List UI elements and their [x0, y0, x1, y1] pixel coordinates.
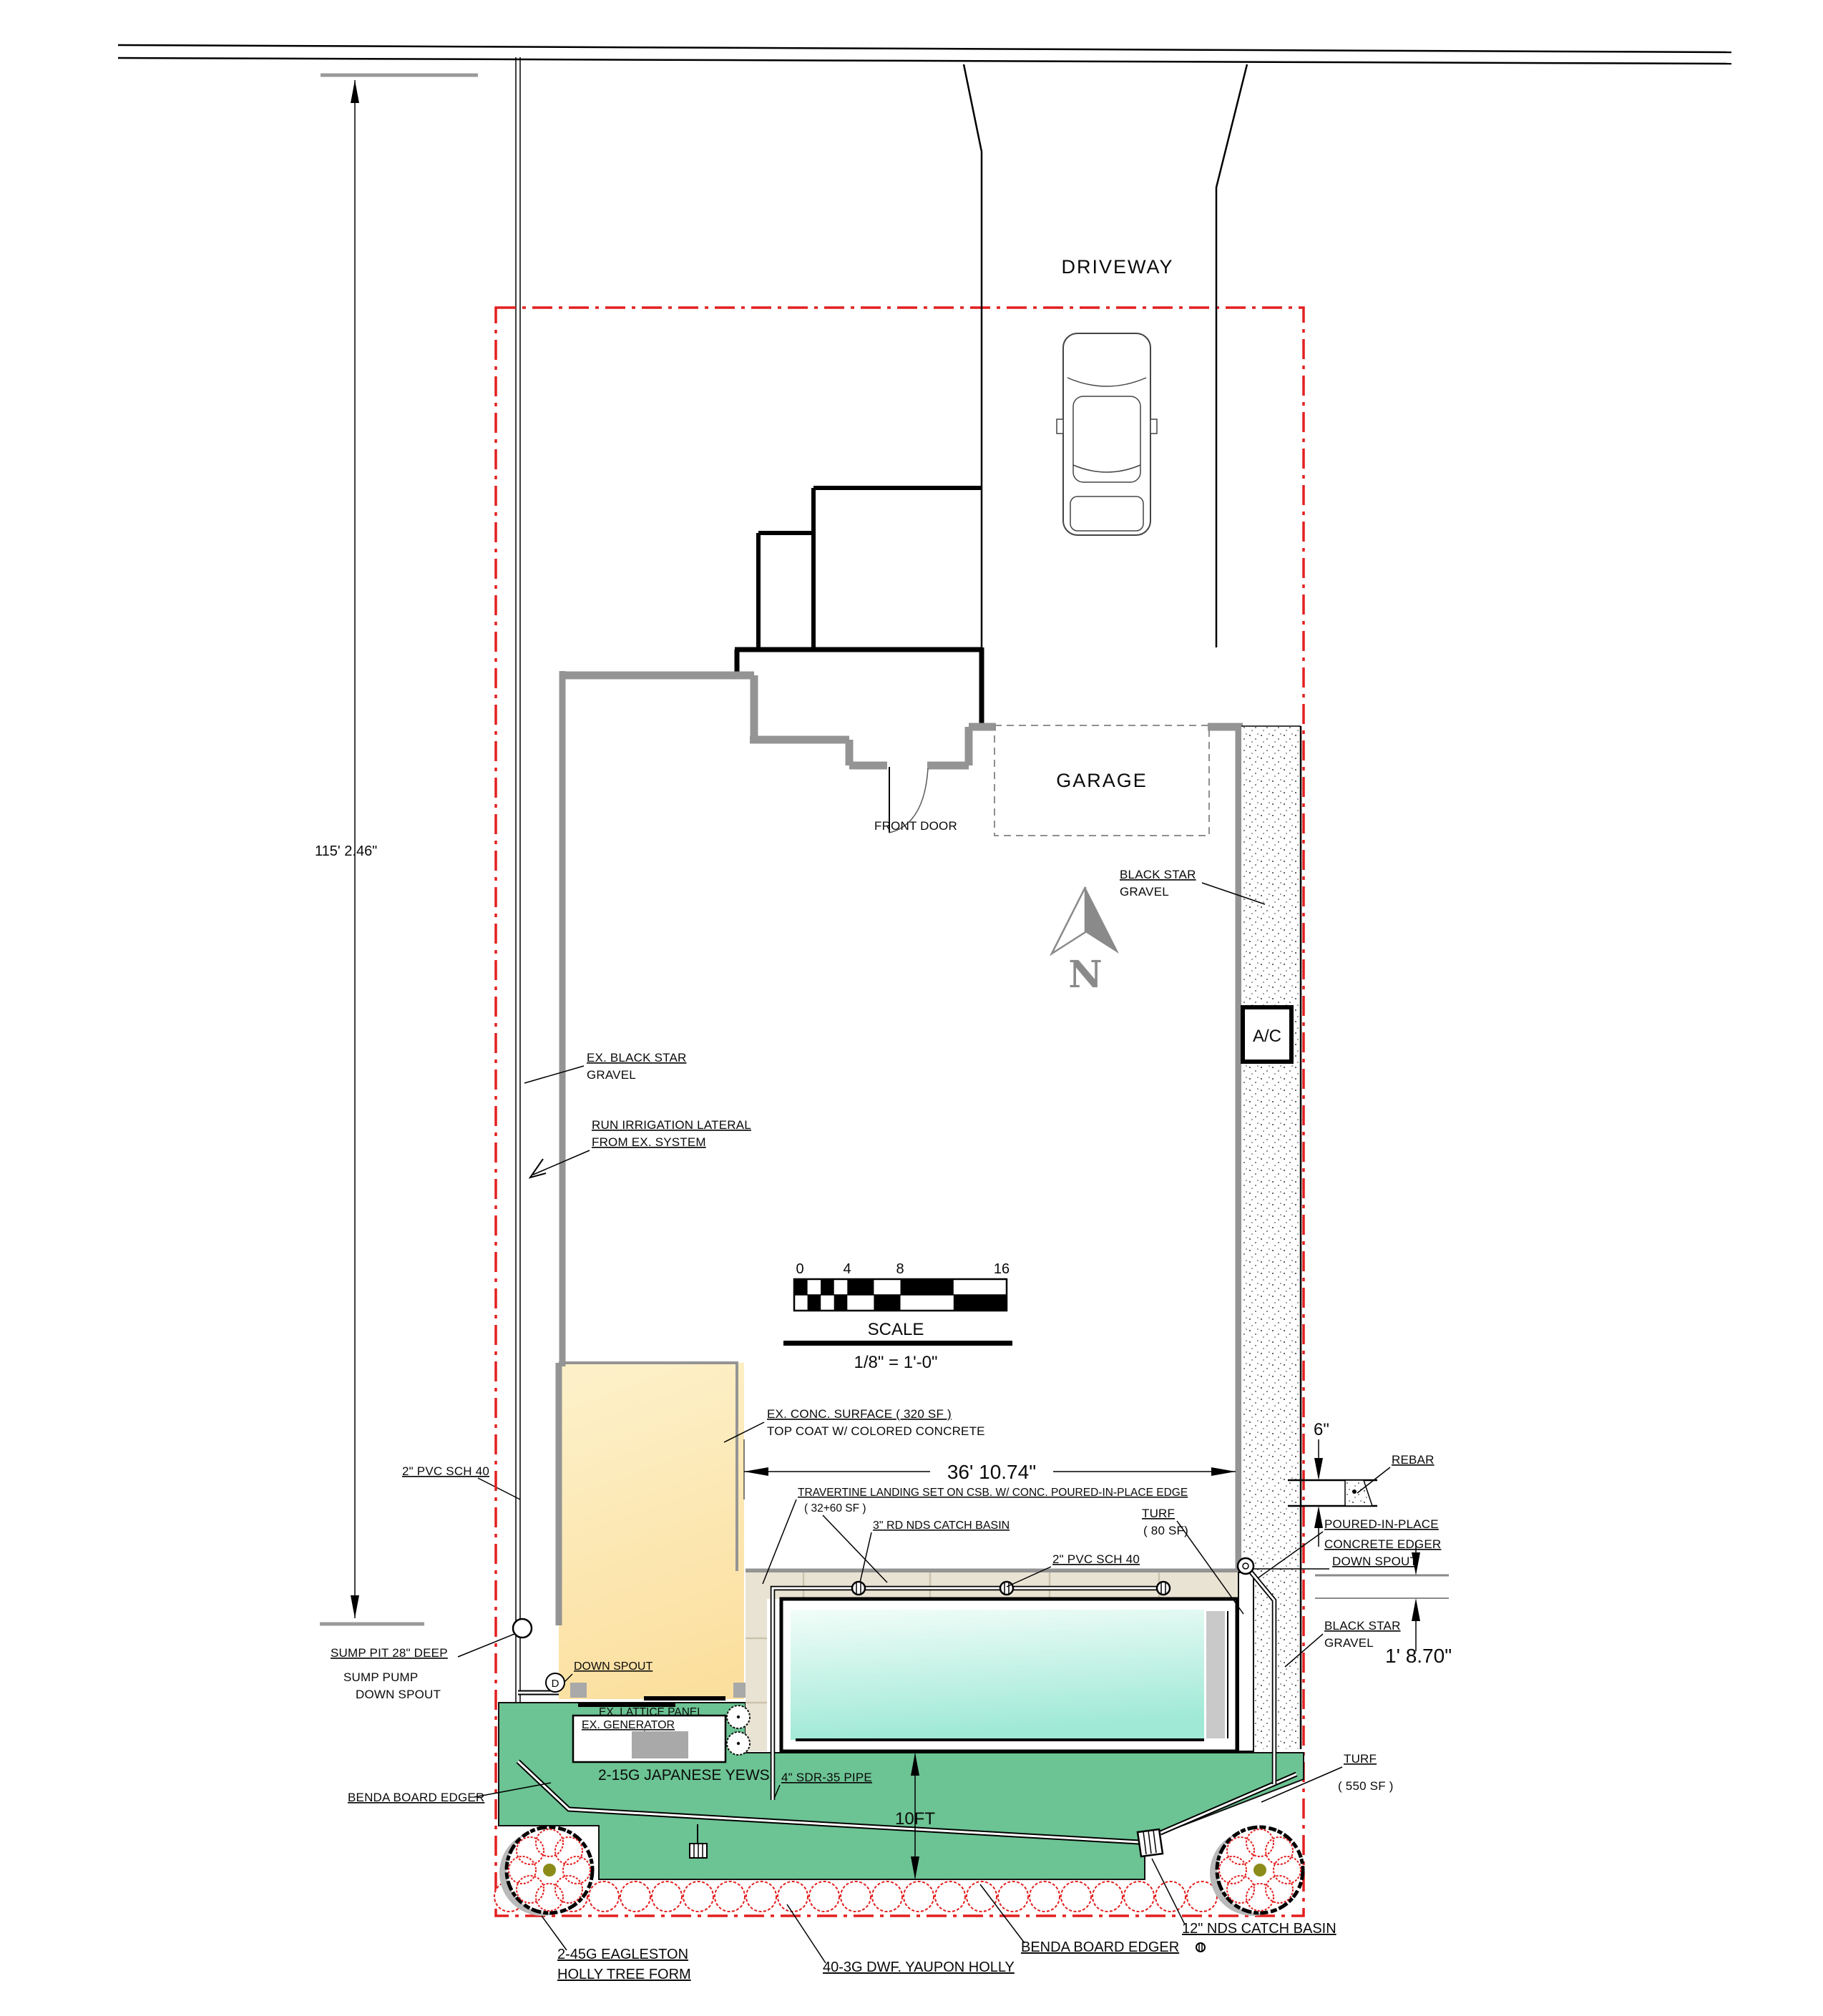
downspout-d-label: D: [552, 1678, 559, 1690]
car-trunk: [1070, 496, 1143, 531]
turf-depth-label: 10FT: [895, 1809, 935, 1829]
concrete-surface: [559, 1363, 744, 1699]
site-plan-canvas: 115' 2.46" 2" PVC SCH 40 DRIVEWAY: [0, 0, 1823, 2016]
north-arrow-right: [1085, 887, 1119, 954]
scale-ratio: 1/8" = 1'-0": [854, 1353, 937, 1372]
travertine-label: TRAVERTINE LANDING SET ON CSB. W/ CONC. …: [798, 1487, 1188, 1499]
north-arrow-left: [1052, 887, 1085, 954]
lot-depth-label: 115' 2.46": [315, 843, 377, 859]
ex-gravel-label2: GRAVEL: [587, 1068, 636, 1082]
pvc-left-label: 2" PVC SCH 40: [402, 1464, 489, 1478]
arrow-open-icon: [530, 1159, 546, 1178]
shrub-icon: [998, 1882, 1028, 1912]
rebar-label: REBAR: [1392, 1453, 1435, 1467]
lot-depth-dimension: 115' 2.46": [315, 75, 478, 1624]
scale-tick-8: 8: [896, 1261, 904, 1277]
black-star-gravel-label: BLACK STAR: [1120, 868, 1196, 881]
arrow-up-icon: [1314, 1506, 1323, 1528]
yaupon-label: 40-3G DWF. YAUPON HOLLY: [823, 1959, 1015, 1975]
front-door-label: FRONT DOOR: [874, 819, 957, 833]
black-star-gravel-label2: GRAVEL: [1120, 885, 1169, 899]
edger-width-label: 6": [1314, 1420, 1329, 1439]
shrub-icon: [778, 1882, 808, 1912]
garage-label: GARAGE: [1056, 770, 1148, 791]
front-door: FRONT DOOR: [874, 767, 957, 833]
bsg-right-label: BLACK STAR: [1324, 1619, 1401, 1633]
car-icon: [1057, 333, 1157, 535]
pool-coping-right: [1238, 1572, 1253, 1751]
scale-tick-0: 0: [796, 1261, 803, 1277]
left-notes: EX. BLACK STAR GRAVEL RUN IRRIGATION LAT…: [524, 1051, 751, 1178]
shrub-icon: [1093, 1882, 1123, 1912]
turf80-label2: ( 80 SF): [1143, 1524, 1188, 1537]
left-fence-pipe: 2" PVC SCH 40: [402, 57, 565, 1766]
eagleston-label: 2-45G EAGLESTON: [557, 1947, 688, 1962]
scale-checkers: [794, 1279, 1007, 1311]
equipment-area: EX. LATTICE PANEL EX. GENERATOR 2-15G JA…: [573, 1703, 770, 1783]
arrow-down-icon: [1314, 1458, 1323, 1480]
checker: [821, 1279, 834, 1295]
cleanout-icon: [1196, 1943, 1205, 1952]
shrub-icon: [715, 1882, 745, 1912]
shrub-icon: [809, 1882, 839, 1912]
irrigation-label2: FROM EX. SYSTEM: [592, 1135, 706, 1149]
shrub-icon: [620, 1882, 650, 1912]
sump-pump-label: SUMP PUMP: [343, 1670, 418, 1684]
pool-shelf: [1206, 1611, 1225, 1738]
catch-basin-12-label: 12" NDS CATCH BASIN: [1182, 1921, 1336, 1937]
scale-underline: [783, 1341, 1012, 1346]
checker: [874, 1295, 900, 1311]
driveway-label: DRIVEWAY: [1061, 256, 1173, 278]
street-line: [118, 58, 1731, 64]
car-cabin: [1073, 396, 1140, 482]
shrub-icon: [841, 1882, 871, 1912]
driveway-edge: [964, 64, 982, 647]
scale-bar: 0 4 8 16 SCALE 1/8" = 1'-0": [783, 1261, 1012, 1372]
car-mirror: [1150, 419, 1157, 434]
shrub-icon: [746, 1882, 776, 1912]
leader-line: [542, 1916, 567, 1950]
checker: [847, 1279, 874, 1295]
site-plan-drawing: 115' 2.46" 2" PVC SCH 40 DRIVEWAY: [0, 0, 1823, 2016]
deck-left-strip: [746, 1572, 767, 1751]
turf550-label: TURF: [1344, 1752, 1377, 1766]
sdr35-label: 4" SDR-35 PIPE: [781, 1771, 872, 1784]
house-outline-black: [735, 488, 982, 727]
sump-pit-label: SUMP PIT 28" DEEP: [331, 1646, 448, 1660]
pool-water: [791, 1610, 1204, 1740]
arrow-right-icon: [1211, 1467, 1236, 1476]
pip-edger-label: POURED-IN-PLACE: [1324, 1517, 1439, 1531]
bsg-right-label2: GRAVEL: [1324, 1636, 1374, 1650]
travertine-label2: ( 32+60 SF ): [804, 1502, 866, 1515]
scale-tick-4: 4: [843, 1261, 851, 1277]
ex-concrete-area: [559, 1363, 750, 1699]
eagleston-label2: HOLLY TREE FORM: [557, 1967, 691, 1982]
street: [118, 45, 1731, 64]
turf550-label2: ( 550 SF ): [1338, 1779, 1394, 1793]
leader-line: [524, 1066, 584, 1083]
leader-line: [458, 1634, 514, 1657]
yew-shrub-icon: [727, 1732, 750, 1755]
turf80-label: TURF: [1142, 1507, 1175, 1520]
shrub-icon: [1124, 1882, 1154, 1912]
shrub-icon: [589, 1882, 619, 1912]
shrub-icon: [1030, 1882, 1060, 1912]
downspout-right-icon: [1238, 1558, 1253, 1574]
north-label: N: [1068, 953, 1103, 997]
checker: [834, 1295, 848, 1311]
catch-basin-3-icon: [852, 1582, 865, 1595]
pipe-coupling-icon: [1000, 1582, 1013, 1595]
catch-basin-3-label: 3" RD NDS CATCH BASIN: [873, 1520, 1010, 1532]
irrigation-label: RUN IRRIGATION LATERAL: [592, 1118, 751, 1132]
shrub-icon: [683, 1882, 713, 1912]
benda-bottom-label: BENDA BOARD EDGER: [1021, 1939, 1179, 1955]
footing: [570, 1683, 587, 1698]
garage: GARAGE: [994, 725, 1209, 836]
shrub-icon: [652, 1882, 682, 1912]
pool: [781, 1572, 1253, 1751]
rebar-dot: [1352, 1489, 1357, 1494]
holly-tree-icon: [1210, 1827, 1303, 1916]
scale-title: SCALE: [868, 1320, 924, 1339]
pipe-endcap-icon: [1157, 1582, 1170, 1595]
ex-gravel-label: EX. BLACK STAR: [587, 1051, 686, 1065]
driveway-edge: [1216, 64, 1247, 647]
benda-left-label: BENDA BOARD EDGER: [348, 1791, 484, 1804]
north-arrow-icon: N: [1052, 887, 1119, 997]
gravel-width-label: 1' 8.70": [1385, 1645, 1452, 1667]
ac-unit: A/C: [1243, 1007, 1291, 1062]
checker: [794, 1279, 808, 1295]
shrub-icon: [872, 1882, 902, 1912]
shrub-row: [494, 1882, 1217, 1912]
pvc-right-label: 2" PVC SCH 40: [1052, 1552, 1140, 1566]
arrow-left-icon: [744, 1467, 768, 1476]
downspout-right-label: DOWN SPOUT: [1332, 1555, 1417, 1568]
checker: [901, 1279, 954, 1295]
ex-conc-label: EX. CONC. SURFACE ( 320 SF ): [767, 1407, 952, 1421]
ac-label: A/C: [1253, 1027, 1281, 1046]
leader-line: [478, 1478, 520, 1499]
checker: [954, 1295, 1007, 1311]
scale-tick-16: 16: [994, 1261, 1010, 1277]
ex-conc-label2: TOP COAT W/ COLORED CONCRETE: [767, 1424, 985, 1438]
leader-line: [787, 1904, 826, 1963]
pool-width-label: 36' 10.74": [947, 1461, 1036, 1483]
sump-pit-icon: [513, 1619, 532, 1638]
checker: [808, 1295, 821, 1311]
arrow-up-icon: [351, 80, 359, 103]
shrub-icon: [1061, 1882, 1091, 1912]
generator-label: EX. GENERATOR: [582, 1719, 675, 1731]
downspout-left-label: DOWN SPOUT: [356, 1688, 441, 1701]
pip-edger-label2: CONCRETE EDGER: [1324, 1537, 1441, 1551]
shrub-icon: [904, 1882, 934, 1912]
arrow-up-icon: [1412, 1598, 1420, 1621]
generator-unit: [632, 1731, 688, 1758]
yew-shrub-icon: [727, 1706, 750, 1728]
yews-label: 2-15G JAPANESE YEWS: [598, 1767, 770, 1783]
downspout-mid-label: DOWN SPOUT: [574, 1660, 653, 1673]
shrub-icon: [935, 1882, 965, 1912]
street-line: [118, 45, 1731, 52]
car-mirror: [1057, 419, 1063, 434]
arrow-down-icon: [351, 1595, 359, 1618]
